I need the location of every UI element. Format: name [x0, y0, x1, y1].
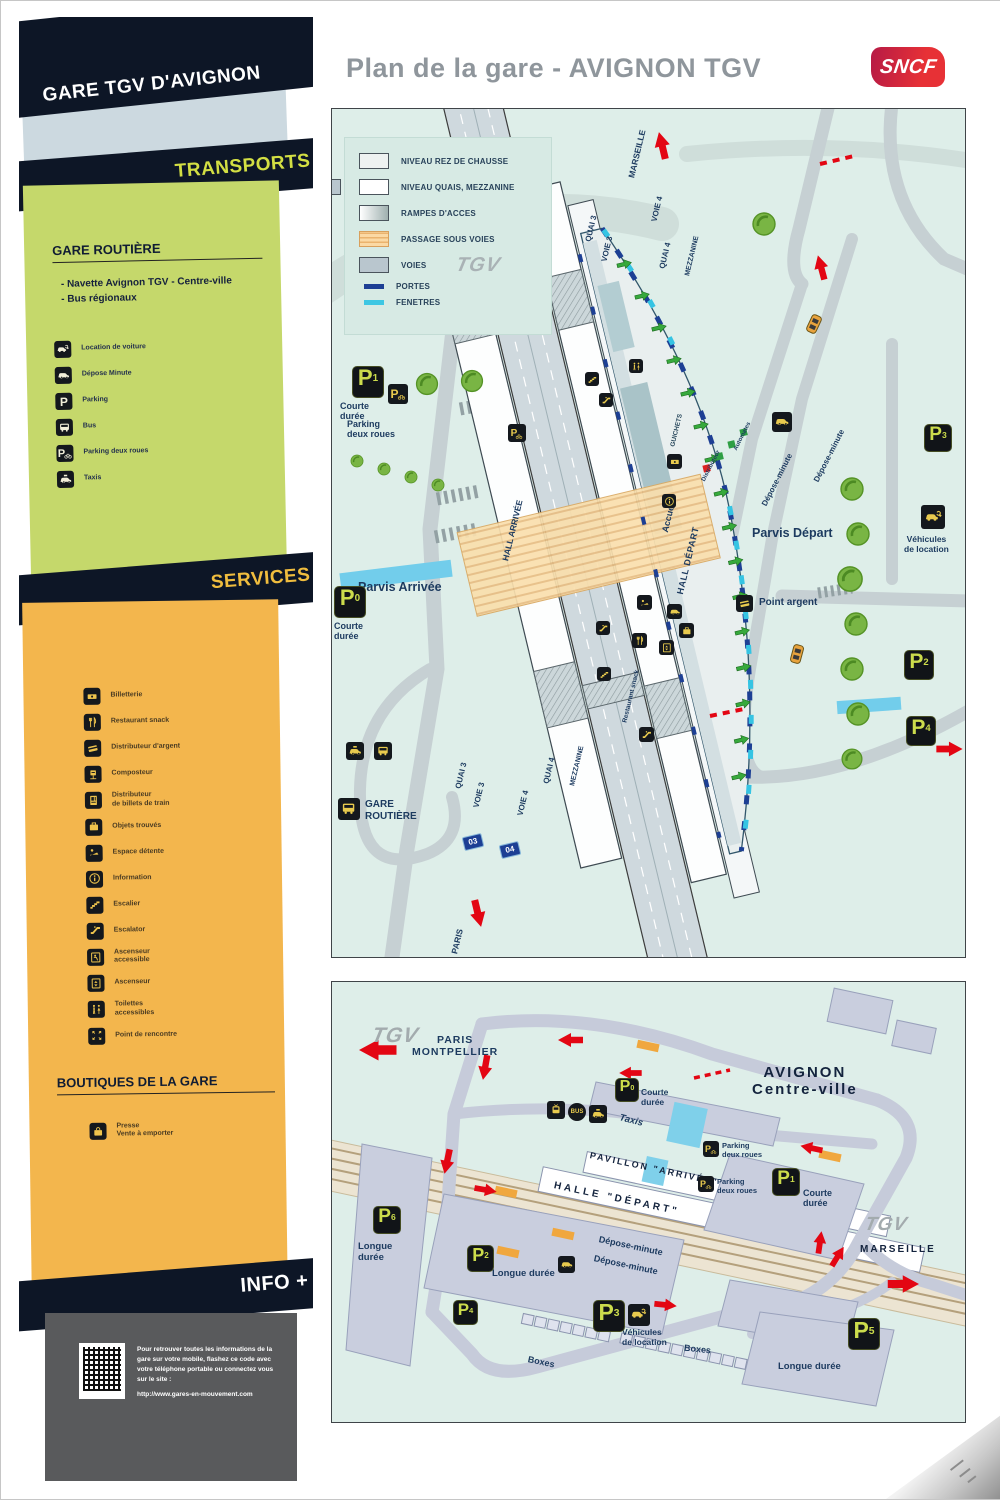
stairs-icon: [597, 667, 611, 681]
accessible-toilets-icon: [88, 1001, 105, 1018]
tram-icon: [547, 1101, 565, 1119]
parking-p1-badge: P1: [352, 366, 384, 398]
list-item: Bus: [56, 415, 266, 436]
list-item: Distributeur de billets de train: [85, 789, 263, 809]
information-icon: [662, 494, 676, 508]
list-item: Presse Vente à emporter: [89, 1120, 267, 1140]
escalator-icon: [639, 727, 654, 742]
list-item-label: Dépose Minute: [82, 370, 132, 380]
list-item: Escalier: [86, 894, 264, 913]
page-curl: [886, 1415, 1000, 1499]
legend-row: RAMPES D'ACCES: [359, 200, 551, 226]
meeting-point-icon: [88, 1027, 105, 1044]
ticket-office-icon: [83, 688, 100, 705]
legend-label: PORTES: [396, 282, 430, 291]
car-rental-icon: [54, 341, 71, 358]
drop-off-icon: [55, 367, 72, 384]
restaurant-icon: [84, 714, 101, 731]
list-item: Escalator: [87, 920, 265, 939]
list-item: Composteur: [84, 763, 262, 782]
legend-windows-swatch: [364, 300, 384, 305]
map-legend: NIVEAU REZ DE CHAUSSE NIVEAU QUAIS, MEZZ…: [344, 137, 552, 335]
list-item: Location de voiture: [54, 337, 264, 358]
two-wheels-parking-icon: P: [508, 424, 526, 442]
bus-icon: [338, 798, 360, 820]
qr-pattern: [83, 1347, 121, 1391]
list-item-label: Parking deux roues: [83, 447, 148, 457]
list-item-label: Distributeur de billets de train: [112, 791, 170, 809]
drop-off-icon: [558, 1256, 575, 1273]
list-item-label: Ascenseur accessible: [114, 948, 150, 966]
list-item: P Parking: [55, 389, 265, 410]
legend-label: PASSAGE SOUS VOIES: [401, 235, 495, 244]
parking-p0-badge: P0: [334, 586, 366, 618]
list-item: Restaurant snack: [84, 711, 262, 730]
list-item-label: Taxis: [84, 474, 102, 483]
legend-label: NIVEAU QUAIS, MEZZANINE: [401, 183, 515, 192]
p1-courte-duree-label: Courte durée: [803, 1188, 832, 1209]
list-item: Toilettes accessibles: [88, 998, 266, 1018]
escalator-icon: [596, 621, 610, 635]
tgv-logo: TGV: [863, 1214, 910, 1236]
parking-p6-badge: P6: [373, 1206, 401, 1234]
list-item-label: Parking: [82, 396, 108, 405]
parking-p4-badge: P4: [453, 1300, 478, 1325]
info-text: Pour retrouver toutes les informations d…: [137, 1345, 285, 1385]
services-banner-label: SERVICES: [210, 564, 311, 594]
bus-icon: BUS: [568, 1103, 586, 1121]
two-wheels-parking-icon: P: [703, 1141, 719, 1157]
information-icon: [86, 870, 103, 887]
info-panel: Pour retrouver toutes les informations d…: [45, 1313, 297, 1481]
legend-row: NIVEAU REZ DE CHAUSSE: [359, 148, 551, 174]
list-item: Point de rencontre: [88, 1025, 266, 1044]
lost-property-icon: [85, 818, 102, 835]
list-item-label: Restaurant snack: [111, 717, 169, 727]
sidebar: GARE TGV D'AVIGNON TRANSPORTS GARE ROUTI…: [19, 17, 313, 1483]
list-item-label: Billetterie: [110, 691, 142, 700]
list-item: Ascenseur accessible: [87, 946, 265, 966]
car-rental-icon: [921, 505, 945, 529]
bus-icon: [374, 742, 392, 760]
qr-code: [79, 1343, 125, 1399]
parvis-depart-label: Parvis Départ: [752, 526, 833, 540]
drop-off-icon: [667, 604, 682, 619]
direction-marseille-label: MARSEILLE: [860, 1244, 936, 1256]
direction-paris-montpellier-label: PARIS MONTPELLIER: [412, 1034, 498, 1058]
list-item-label: Ascenseur: [114, 978, 150, 987]
list-item: Taxis: [57, 467, 267, 488]
two-wheels-parking-icon: P: [56, 445, 73, 462]
parking-p2-badge: P2: [467, 1245, 494, 1272]
two-wheels-parking-icon: P: [388, 384, 408, 404]
legend-label: RAMPES D'ACCES: [401, 209, 476, 218]
parking-p0-badge: P0: [615, 1078, 639, 1102]
legend-ramp-swatch: [359, 205, 389, 221]
transports-banner-label: TRANSPORTS: [174, 150, 311, 183]
taxi-icon: [346, 742, 364, 760]
stairs-icon: [585, 372, 599, 386]
parking-deux-roues-label: Parking deux roues: [722, 1142, 762, 1159]
list-item-label: Espace détente: [113, 847, 164, 856]
list-item: Distributeur d'argent: [84, 737, 262, 756]
lift-icon: [87, 975, 104, 992]
sncf-logo: SNCF: [871, 47, 945, 87]
transports-panel: GARE ROUTIÈRE - Navette Avignon TGV - Ce…: [23, 180, 287, 585]
list-item-label: Toilettes accessibles: [115, 1000, 155, 1018]
press-shop-icon: [89, 1122, 106, 1139]
ticket-validation-icon: [84, 766, 101, 783]
restaurant-icon: [632, 633, 647, 648]
parking-deux-roues-label: Parking deux roues: [347, 419, 395, 440]
direction-avignon-label: AVIGNON Centre-ville: [752, 1064, 858, 1099]
list-item-label: Presse Vente à emporter: [116, 1121, 173, 1139]
stairs-icon: [86, 896, 103, 913]
p0-courte-duree-label: Courte durée: [334, 621, 363, 642]
ticket-office-icon: [667, 454, 682, 469]
list-item: Ascenseur: [87, 972, 265, 991]
list-item: Dépose Minute: [55, 363, 265, 384]
parking-deux-roues-label: Parking deux roues: [717, 1178, 757, 1195]
red-dashed-limit: [694, 1070, 730, 1078]
list-item-label: Escalator: [114, 926, 146, 935]
list-item: Espace détente: [86, 842, 264, 861]
info-banner-label: INFO +: [240, 1270, 310, 1298]
list-item-label: Escalier: [113, 900, 140, 909]
gare-routiere-label: GARE ROUTIÈRE: [365, 799, 417, 822]
drop-off-icon: [772, 412, 792, 432]
legend-label: FENETRES: [396, 298, 440, 307]
escalator-icon: [599, 393, 613, 407]
cash-machine-icon: [84, 740, 101, 757]
list-item: Billetterie: [83, 685, 261, 704]
p0-courte-duree-label: Courte durée: [641, 1088, 668, 1108]
parking-p2-badge: P2: [904, 650, 934, 680]
parking-p4-badge: P4: [906, 716, 936, 746]
legend-row: PASSAGE SOUS VOIES: [359, 226, 551, 252]
list-item-label: Objets trouvés: [112, 822, 161, 831]
list-item-label: Point de rencontre: [115, 1030, 177, 1040]
legend-row: NIVEAU QUAIS, MEZZANINE: [359, 174, 551, 200]
rest-area-icon: [86, 844, 103, 861]
legend-voies-extra-swatch: [331, 179, 341, 195]
ticket-machine-icon: [85, 792, 102, 809]
list-item-label: Distributeur d'argent: [111, 743, 180, 753]
parking-p3-badge: P3: [924, 424, 952, 452]
vehicules-location-label: Véhicules de location: [904, 535, 949, 555]
taxi-icon: [589, 1105, 607, 1123]
services-panel: Billetterie Restaurant snack Distributeu…: [22, 599, 288, 1299]
access-roads-map: TGV PARIS MONTPELLIER AVIGNON Centre-vil…: [331, 981, 966, 1423]
page-title: Plan de la gare - AVIGNON TGV: [346, 53, 761, 84]
lift-icon: [659, 640, 674, 655]
vehicules-location-label: Véhicules de location: [622, 1328, 667, 1348]
parking-p3-badge: P3: [593, 1300, 625, 1332]
legend-label: VOIES: [401, 261, 426, 270]
accessible-toilets-icon: [629, 359, 643, 373]
legend-row: PORTES: [359, 278, 551, 294]
station-map-poster: GARE TGV D'AVIGNON TRANSPORTS GARE ROUTI…: [0, 0, 1000, 1500]
list-item: Information: [86, 868, 264, 887]
list-item-label: Location de voiture: [81, 343, 146, 353]
list-item: Objets trouvés: [85, 816, 263, 835]
parking-icon: P: [55, 393, 72, 410]
taxi-icon: [57, 471, 74, 488]
list-item-label: Information: [113, 874, 152, 883]
legend-tracks-swatch: [359, 257, 389, 273]
p2-longue-duree-label: Longue durée: [492, 1269, 555, 1280]
info-url: http://www.gares-en-mouvement.com: [137, 1391, 287, 1398]
legend-doors-swatch: [364, 284, 384, 289]
parking-p5-badge: P5: [848, 1318, 880, 1350]
p4-orange-arrow: [936, 742, 962, 757]
escalator-icon: [87, 922, 104, 939]
list-item-label: Composteur: [111, 769, 152, 778]
main-station-map: NIVEAU REZ DE CHAUSSE NIVEAU QUAIS, MEZZ…: [331, 108, 966, 958]
list-item: P Parking deux roues: [56, 441, 266, 462]
rest-area-icon: [637, 595, 652, 610]
point-argent-label: Point argent: [759, 597, 817, 609]
bus-icon: [56, 419, 73, 436]
legend-underpass-swatch: [359, 231, 389, 247]
parking-p1-badge: P1: [772, 1168, 800, 1196]
legend-label: NIVEAU REZ DE CHAUSSE: [401, 157, 508, 166]
legend-ground-swatch: [359, 153, 389, 169]
p5-longue-duree-label: Longue durée: [778, 1362, 841, 1373]
car-rental-icon: [628, 1304, 650, 1326]
p6-longue-duree-label: Longue durée: [358, 1242, 392, 1264]
list-item-label: Bus: [83, 422, 96, 431]
parvis-arrivee-label: Parvis Arrivée: [358, 580, 442, 594]
lost-property-icon: [679, 623, 694, 638]
sncf-logo-text: SNCF: [878, 56, 938, 79]
two-wheels-parking-icon: P: [698, 1176, 714, 1192]
page-curl-back: [886, 1415, 1000, 1499]
legend-row: FENETRES: [359, 294, 551, 310]
accessible-lift-icon: [87, 948, 104, 965]
tgv-ghost-logo: TGV: [454, 254, 503, 277]
legend-platform-swatch: [359, 179, 389, 195]
legend-row: VOIES TGV: [359, 252, 551, 278]
cash-machine-icon: [736, 595, 753, 612]
